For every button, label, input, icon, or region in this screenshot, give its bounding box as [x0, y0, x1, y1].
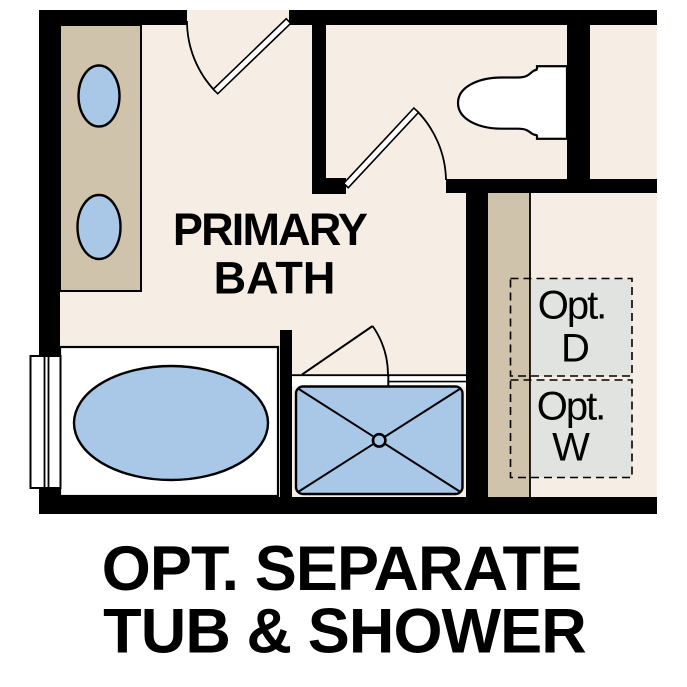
- svg-text:Opt.: Opt.: [538, 284, 606, 328]
- svg-text:Opt.: Opt.: [537, 385, 605, 429]
- svg-text:D: D: [561, 327, 590, 371]
- svg-text:PRIMARY: PRIMARY: [173, 204, 368, 255]
- svg-text:TUB & SHOWER: TUB & SHOWER: [103, 597, 586, 667]
- svg-text:BATH: BATH: [214, 253, 336, 304]
- svg-text:OPT. SEPARATE: OPT. SEPARATE: [102, 534, 582, 604]
- svg-text:W: W: [552, 426, 590, 470]
